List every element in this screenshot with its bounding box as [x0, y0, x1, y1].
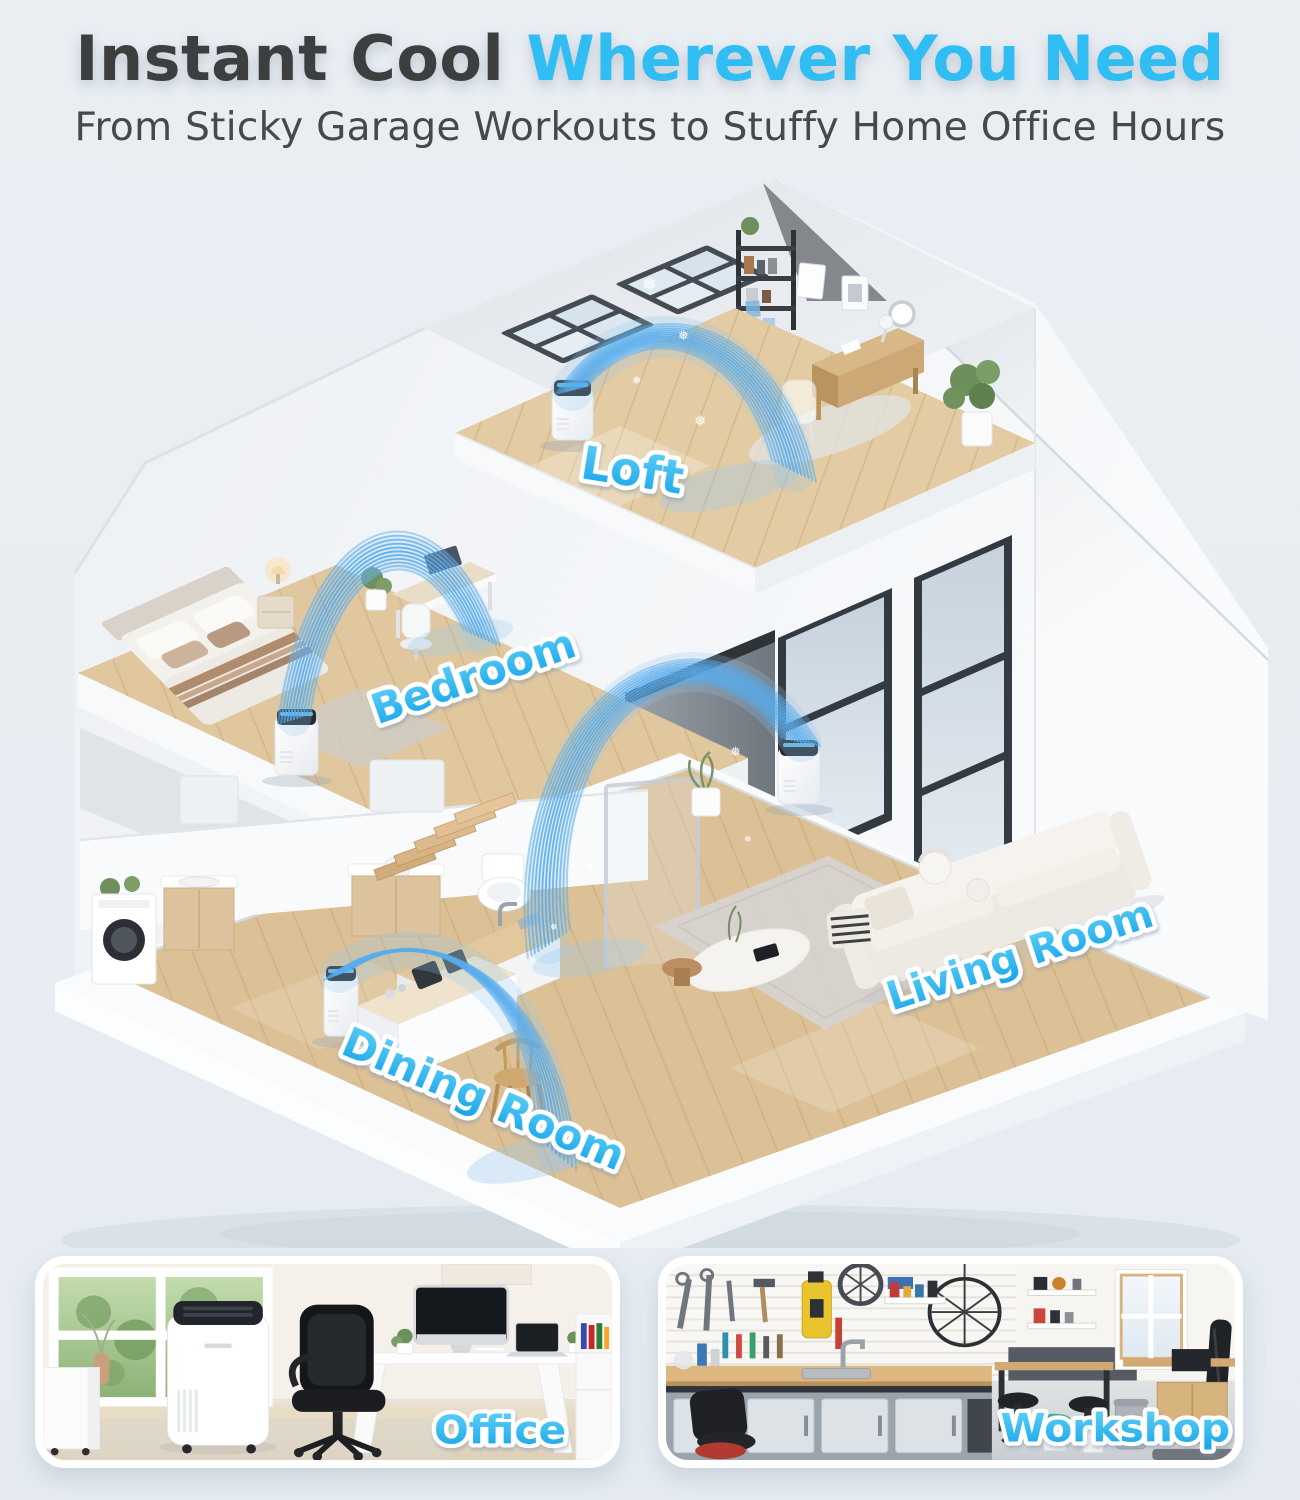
leaning-frame — [796, 263, 825, 300]
svg-text:❅: ❅ — [550, 923, 558, 933]
photo-label-office: Office — [434, 1408, 566, 1453]
page-subtitle: From Sticky Garage Workouts to Stuffy Ho… — [0, 105, 1300, 150]
wall-art — [442, 1264, 531, 1284]
workshop-scene: Workshop — [666, 1264, 1235, 1460]
shelf-cabinet — [576, 1314, 612, 1460]
photo-strip: Office — [35, 1256, 1243, 1468]
svg-text:❅: ❅ — [744, 835, 752, 845]
desktop-monitor — [415, 1286, 508, 1353]
papers — [475, 1347, 504, 1351]
photo-label-workshop: Workshop — [1001, 1406, 1231, 1451]
title-accent-part: Wherever You Need — [526, 22, 1224, 95]
picture-art — [848, 284, 862, 302]
header: Instant Cool Wherever You Need From Stic… — [0, 26, 1300, 150]
nightstand — [258, 596, 294, 628]
power-tool — [802, 1271, 831, 1338]
portable-ac-unit — [160, 1301, 277, 1454]
ottoman — [967, 879, 989, 901]
page-title: Instant Cool Wherever You Need — [0, 26, 1300, 91]
photo-office: Office — [35, 1256, 620, 1468]
svg-text:❅: ❅ — [730, 745, 741, 760]
mirror — [370, 760, 444, 812]
wall-clock — [890, 302, 914, 326]
office-scene: Office — [43, 1264, 612, 1460]
mirror — [180, 776, 238, 824]
sink-cabinet — [161, 876, 237, 950]
file-cabinet — [43, 1368, 99, 1456]
title-dark-part: Instant Cool — [75, 22, 504, 95]
toilet — [478, 854, 530, 911]
svg-text:❅: ❅ — [708, 794, 717, 807]
red-tool — [835, 1318, 842, 1349]
photo-workshop: Workshop — [658, 1256, 1243, 1468]
page: Instant Cool Wherever You Need From Stic… — [0, 0, 1300, 1500]
svg-text:❅: ❅ — [642, 274, 657, 295]
bench-sink — [802, 1368, 870, 1378]
svg-text:❅: ❅ — [586, 862, 594, 873]
svg-text:❅: ❅ — [678, 329, 689, 344]
monitor — [1172, 1349, 1211, 1371]
svg-text:❅: ❅ — [632, 374, 641, 387]
brand-logo — [204, 1344, 231, 1349]
svg-text:❅: ❅ — [694, 412, 707, 430]
house-cutaway-illustration: ❅ ❅ ❅ ❅ ❅ ❅ ❅ ❅ ❅ ❅ Loft Bedroom Living … — [30, 168, 1270, 1248]
